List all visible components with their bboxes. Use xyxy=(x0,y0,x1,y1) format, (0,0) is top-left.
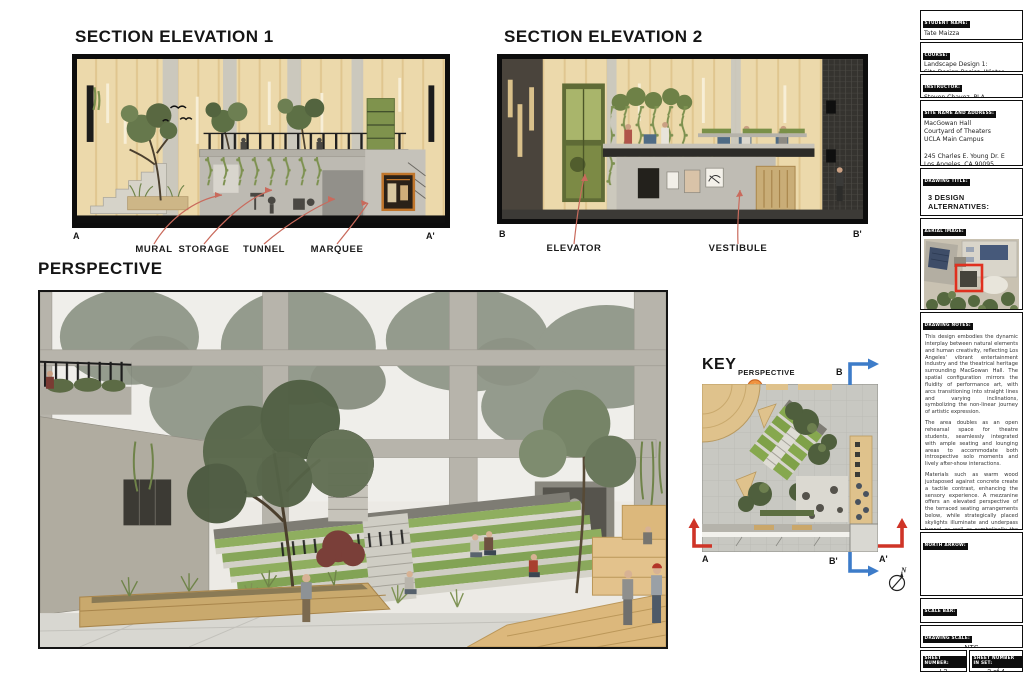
key-title: KEY xyxy=(702,356,736,374)
sheet-number-label: SHEET NUMBER: xyxy=(923,656,967,668)
drawing-title-line2: MACGOWAN HALL, UCLA xyxy=(921,211,1022,216)
titleblock-sheet-number-in-set: SHEET NUMBER IN SET: 3 of 4 xyxy=(969,650,1023,672)
key-perspective-label: PERSPECTIVE xyxy=(738,368,795,377)
titleblock-drawing-scale: DRAWING SCALE: NTS xyxy=(920,625,1023,648)
north-letter: N xyxy=(900,566,907,575)
drawing-notes-label: DRAWING NOTES: xyxy=(923,323,973,330)
perspective-render xyxy=(38,290,668,649)
titleblock-drawing-title: DRAWING TITLE: 3 DESIGN ALTERNATIVES: MA… xyxy=(920,168,1023,216)
section-arrow-a-icon xyxy=(686,518,714,548)
elevation1-callout-tunnel: TUNNEL xyxy=(243,244,285,255)
site-line5: Los Angeles, CA 90095 xyxy=(921,161,1022,166)
site-label: SITE NAME AND ADDRESS: xyxy=(923,111,997,118)
elevation2-drawing xyxy=(497,54,868,224)
key-marker-a: A xyxy=(702,554,709,564)
section-arrow-a-prime-icon xyxy=(878,518,910,548)
elevation2-marker-right: B' xyxy=(853,229,862,239)
drawing-scale-value: NTS xyxy=(921,644,1022,648)
aerial-image-label: AERIAL IMAGE: xyxy=(923,229,966,236)
sheet-number-in-set-value: 3 of 4 xyxy=(970,669,1022,672)
section-arrow-b-prime-icon xyxy=(843,552,881,580)
north-compass-icon: N xyxy=(886,565,910,593)
titleblock-north-arrow: NORTH ARROW: xyxy=(920,532,1023,596)
titleblock-student: STUDENT NAME: Tate Maizza xyxy=(920,10,1023,40)
student-name-value: Tate Maizza xyxy=(921,29,1022,38)
elevation1-callout-storage: STORAGE xyxy=(178,244,229,255)
titleblock-sheet-number: SHEET NUMBER: L3 xyxy=(920,650,967,672)
course-line1: Landscape Design 1: xyxy=(921,61,1022,69)
titleblock-notes: DRAWING NOTES: This design embodies the … xyxy=(920,312,1023,530)
key-marker-b-prime: B' xyxy=(829,556,838,566)
titleblock: STUDENT NAME: Tate Maizza COURSE: Landsc… xyxy=(920,10,1023,672)
key-plan xyxy=(702,384,878,552)
north-arrow-label: NORTH ARROW: xyxy=(923,543,968,550)
titleblock-site: SITE NAME AND ADDRESS: MacGowan Hall Cou… xyxy=(920,100,1023,166)
site-line1: MacGowan Hall xyxy=(921,119,1022,128)
titleblock-scale-bar: SCALE BAR: xyxy=(920,598,1023,623)
elevation2-title: SECTION ELEVATION 2 xyxy=(504,27,703,47)
sheet-number-in-set-label: SHEET NUMBER IN SET: xyxy=(972,656,1023,668)
key-marker-a-prime: A' xyxy=(879,554,888,564)
titleblock-course: COURSE: Landscape Design 1: Site Design … xyxy=(920,42,1023,72)
course-line2: Site Design Basics, Winter 2025 xyxy=(921,69,1022,72)
drawing-scale-label: DRAWING SCALE: xyxy=(923,636,972,643)
instructor-value: Steven Chavez, PLA xyxy=(921,93,1022,98)
perspective-title: PERSPECTIVE xyxy=(38,259,163,279)
section-arrow-b-icon xyxy=(843,356,881,386)
elevation2-callout-elevator: ELEVATOR xyxy=(547,243,602,254)
drawing-title-line1: 3 DESIGN ALTERNATIVES: xyxy=(921,191,1022,211)
titleblock-instructor: INSTRUCTOR: Steven Chavez, PLA xyxy=(920,74,1023,98)
elevation1-drawing xyxy=(72,54,450,228)
aerial-photo xyxy=(924,239,1019,310)
elevation2-marker-left: B xyxy=(499,229,506,239)
site-line4: 245 Charles E. Young Dr. E xyxy=(921,153,1022,161)
student-name-label: STUDENT NAME: xyxy=(923,21,970,28)
notes-paragraph-3: Materials such as warm wood juxtaposed a… xyxy=(925,472,1018,530)
sheet-number-value: L3 xyxy=(921,669,966,672)
drawing-title-label: DRAWING TITLE: xyxy=(923,179,970,186)
elevation1-illustration xyxy=(77,59,445,223)
key-marker-b: B xyxy=(836,367,843,377)
elevation1-callout-marquee: MARQUEE xyxy=(311,244,364,255)
elevation1-callout-mural: MURAL xyxy=(135,244,172,255)
elevation1-marker-left: A xyxy=(73,231,80,241)
site-line2: Courtyard of Theaters xyxy=(921,128,1022,136)
course-label: COURSE: xyxy=(923,53,950,60)
titleblock-aerial: AERIAL IMAGE: xyxy=(920,218,1023,310)
elevation1-marker-right: A' xyxy=(426,231,435,241)
elevation1-title: SECTION ELEVATION 1 xyxy=(75,27,274,47)
notes-paragraph-2: The area doubles as an open rehearsal sp… xyxy=(925,420,1018,468)
scale-bar-label: SCALE BAR: xyxy=(923,609,958,616)
elevation2-illustration xyxy=(502,59,863,219)
notes-paragraph-1: This design embodies the dynamic interpl… xyxy=(925,334,1018,416)
presentation-sheet: SECTION ELEVATION 1 xyxy=(0,0,1024,681)
site-line3: UCLA Main Campus xyxy=(921,136,1022,144)
instructor-label: INSTRUCTOR: xyxy=(923,85,963,92)
elevation2-callout-vestibule: VESTIBULE xyxy=(709,243,768,254)
perspective-illustration xyxy=(40,292,666,647)
